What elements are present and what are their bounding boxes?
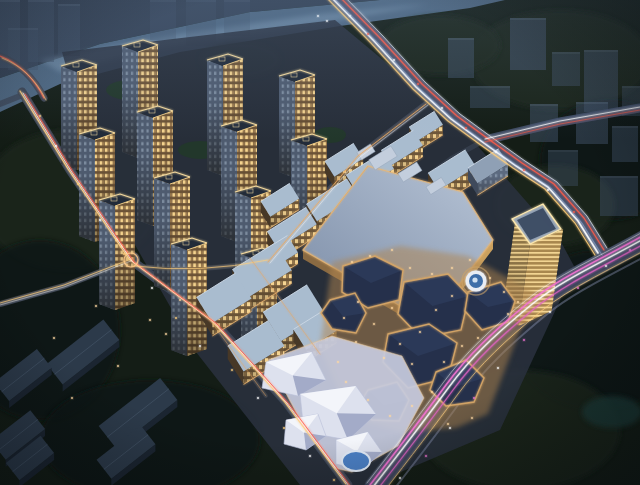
vignette: [0, 0, 640, 485]
rendering-svg: [0, 0, 640, 485]
aerial-night-rendering: [0, 0, 640, 485]
